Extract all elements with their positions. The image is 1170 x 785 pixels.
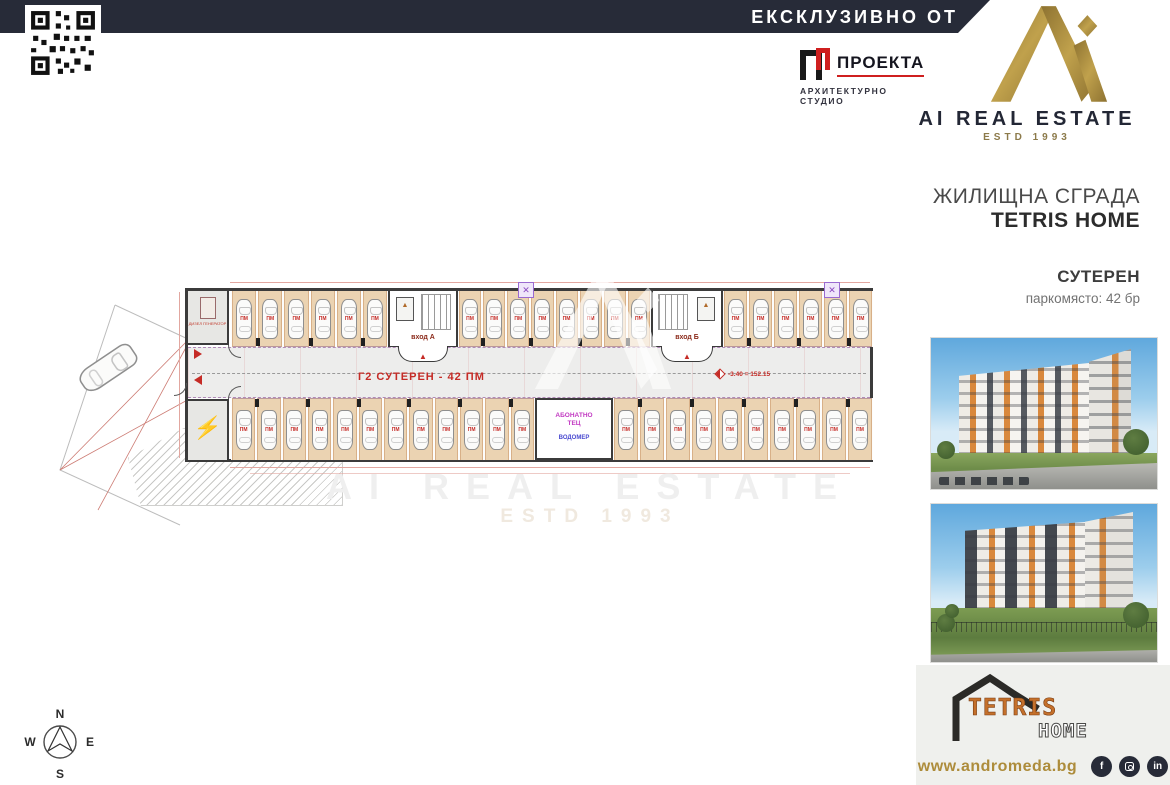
- parking-space-label: ПМ: [309, 427, 330, 433]
- parking-row-top: ПМПМПМПМПМПМПМПМ: [458, 291, 651, 347]
- parking-space-label: ПМ: [823, 427, 845, 433]
- dimension-line: [250, 473, 850, 474]
- parking-space-label: ПМ: [850, 316, 871, 322]
- parking-bay: ПМ: [435, 398, 458, 460]
- parking-bay: ПМ: [284, 291, 308, 347]
- drive-direction-arrow: [194, 349, 202, 359]
- parking-space-label: ПМ: [334, 427, 355, 433]
- parking-bay: ПМ: [556, 291, 578, 347]
- electrical-room: ⚡: [188, 399, 229, 460]
- parking-bay: ПМ: [409, 398, 432, 460]
- parking-bay: ПМ: [337, 291, 361, 347]
- architect-subtitle: АРХИТЕКТУРНО СТУДИО: [800, 86, 935, 106]
- floor-level: СУТЕРЕН: [933, 267, 1140, 287]
- dimension-line: [179, 292, 180, 458]
- stair-lobby: [398, 346, 448, 362]
- parking-bay: ПМ: [283, 398, 306, 460]
- elevation-value: -3.40 = 152.15: [728, 371, 770, 378]
- parking-bay: ПМ: [483, 291, 505, 347]
- parking-bay: ПМ: [232, 291, 256, 347]
- architect-name: ПРОЕКТА: [837, 53, 924, 77]
- parking-space-label: ПМ: [436, 427, 457, 433]
- parking-row-bottom: ПМПМПМПМПМПМПМПМПМПМПМПМ: [231, 398, 535, 460]
- parking-space-label: ПМ: [775, 316, 796, 322]
- website-link[interactable]: www.andromeda.bg: [918, 758, 1077, 776]
- parking-bay: ПМ: [718, 398, 742, 460]
- parking-bay: ПМ: [628, 291, 650, 347]
- parking-space-label: ПМ: [532, 316, 552, 322]
- parking-space-label: ПМ: [667, 427, 689, 433]
- parking-space-label: ПМ: [693, 427, 715, 433]
- parking-space-label: ПМ: [771, 427, 793, 433]
- dimension-line: [230, 282, 870, 283]
- parking-bay: ПМ: [257, 398, 280, 460]
- parking-bay: ПМ: [531, 291, 553, 347]
- water-meter-label: ВОДОМЕР: [537, 435, 611, 441]
- parking-bay: ПМ: [848, 398, 872, 460]
- generator-room: ДИЗЕЛ ГЕНЕРАТОР: [188, 291, 229, 345]
- instagram-icon[interactable]: [1119, 756, 1140, 777]
- footer-brand-panel: TETRIS HOME www.andromeda.bg f in: [916, 665, 1170, 785]
- stairs-icon: [658, 294, 688, 330]
- parking-space-label: ПМ: [233, 427, 254, 433]
- parking-space-label: ПМ: [508, 316, 528, 322]
- parking-space-label: ПМ: [641, 427, 663, 433]
- parking-bay: ПМ: [849, 291, 872, 347]
- parking-space-label: ПМ: [725, 316, 746, 322]
- parking-space-label: ПМ: [745, 427, 767, 433]
- parking-bay: ПМ: [640, 398, 664, 460]
- parking-space-label: ПМ: [284, 427, 305, 433]
- parking-space-label: ПМ: [338, 316, 360, 322]
- compass-e: E: [86, 735, 94, 749]
- building-render-1: [930, 337, 1158, 490]
- parking-bay: ПМ: [824, 291, 847, 347]
- heating-room-label: АБОНАТНО ТЕЦ: [537, 412, 611, 429]
- compass-s: S: [56, 767, 64, 781]
- parking-space-label: ПМ: [605, 316, 625, 322]
- parking-space-label: ПМ: [615, 427, 637, 433]
- flyer-page: ЕКСКЛУЗИВНО ОТ: [0, 0, 1170, 785]
- ventilation-shaft-icon: ✕: [518, 282, 534, 298]
- parking-bay: ПМ: [258, 291, 282, 347]
- parking-space-label: ПМ: [410, 427, 431, 433]
- parking-bay: ПМ: [311, 291, 335, 347]
- parking-space-label: ПМ: [258, 427, 279, 433]
- parking-bay: ПМ: [363, 291, 387, 347]
- door-arc-icon: [174, 383, 187, 396]
- electrical-icon: ⚡: [186, 415, 230, 441]
- compass-rose: N E S W: [22, 700, 98, 782]
- parking-row-top: ПМПМПМПМПМПМ: [231, 291, 388, 347]
- parking-bay: ПМ: [507, 291, 529, 347]
- project-headline: ЖИЛИЩНА СГРАДА TETRIS HOME СУТЕРЕН парко…: [933, 185, 1140, 306]
- parking-row-top: ПМПМПМПМПМПМ: [723, 291, 873, 347]
- floor-plan: ✕ ✕ ДИЗЕЛ ГЕНЕРАТОР ⚡ ПМПМПМПМПМПМ вход …: [185, 288, 873, 462]
- parking-bay: ПМ: [614, 398, 638, 460]
- generator-room-label: ДИЗЕЛ ГЕНЕРАТОР: [188, 322, 227, 327]
- parking-bay: ПМ: [333, 398, 356, 460]
- elevator-icon: [396, 297, 414, 321]
- ai-real-estate-logo-icon: [985, 2, 1113, 106]
- elevation-marker: -3.40 = 152.15: [716, 370, 770, 378]
- parking-space-label: ПМ: [233, 316, 255, 322]
- parking-space-label: ПМ: [581, 316, 601, 322]
- stair-lobby: [661, 346, 713, 362]
- facebook-icon[interactable]: f: [1091, 756, 1112, 777]
- parking-bay: ПМ: [724, 291, 747, 347]
- parking-bay: ПМ: [459, 291, 481, 347]
- building-render-2: [930, 503, 1158, 663]
- parking-bay: ПМ: [604, 291, 626, 347]
- parking-space-label: ПМ: [557, 316, 577, 322]
- qr-code[interactable]: [25, 5, 101, 81]
- parking-bay: ПМ: [384, 398, 407, 460]
- parking-space-label: ПМ: [461, 427, 482, 433]
- parking-row-bottom: ПМПМПМПМПМПМПМПМПМПМ: [613, 398, 873, 460]
- parking-count: паркомясто: 42 бр: [933, 291, 1140, 306]
- parking-bay: ПМ: [796, 398, 820, 460]
- exclusive-label: ЕКСКЛУЗИВНО ОТ: [751, 7, 958, 28]
- parking-space-label: ПМ: [800, 316, 821, 322]
- parking-bay: ПМ: [770, 398, 794, 460]
- parking-space-label: ПМ: [750, 316, 771, 322]
- parking-bay: ПМ: [308, 398, 331, 460]
- parking-bay: ПМ: [580, 291, 602, 347]
- parking-bay: ПМ: [749, 291, 772, 347]
- elevator-icon: [697, 297, 715, 321]
- tetris-home-logo: TETRIS HOME: [942, 673, 1142, 745]
- compass-n: N: [56, 707, 65, 721]
- entrance-a-label: вход А: [390, 334, 456, 341]
- parking-space-label: ПМ: [364, 316, 386, 322]
- parking-space-label: ПМ: [385, 427, 406, 433]
- parking-space-label: ПМ: [484, 316, 504, 322]
- elevation-diamond-icon: [714, 368, 725, 379]
- brand-estd: ESTD 1993: [912, 132, 1142, 143]
- parking-bay: ПМ: [232, 398, 255, 460]
- parking-bay: ПМ: [460, 398, 483, 460]
- compass-w: W: [24, 735, 36, 749]
- parking-bay: ПМ: [799, 291, 822, 347]
- parking-space-label: ПМ: [486, 427, 507, 433]
- parking-bay: ПМ: [666, 398, 690, 460]
- parking-bay: ПМ: [511, 398, 534, 460]
- parking-space-label: ПМ: [825, 316, 846, 322]
- stairs-icon: [421, 294, 451, 330]
- parking-space-label: ПМ: [512, 427, 533, 433]
- home-logo-text: HOME: [1038, 720, 1088, 742]
- entrance-b-label: вход Б: [653, 334, 721, 341]
- parking-space-label: ПМ: [797, 427, 819, 433]
- tetris-logo-text: TETRIS: [968, 695, 1057, 721]
- parking-space-label: ПМ: [719, 427, 741, 433]
- building-type: ЖИЛИЩНА СГРАДА: [933, 185, 1140, 209]
- parking-space-label: ПМ: [460, 316, 480, 322]
- parking-space-label: ПМ: [849, 427, 871, 433]
- architect-icon: [800, 48, 830, 82]
- parking-space-label: ПМ: [259, 316, 281, 322]
- utility-room: АБОНАТНО ТЕЦ ВОДОМЕР: [535, 398, 613, 460]
- plan-title: Г2 СУТЕРЕН - 42 ПМ: [358, 371, 485, 383]
- parking-space-label: ПМ: [629, 316, 649, 322]
- parking-space-label: ПМ: [285, 316, 307, 322]
- parking-bay: ПМ: [822, 398, 846, 460]
- stairwell-entrance-a: вход А: [388, 291, 458, 347]
- parking-bay: ПМ: [359, 398, 382, 460]
- stairwell-entrance-b: вход Б: [651, 291, 723, 347]
- qr-pattern: [29, 9, 97, 77]
- parking-bay: ПМ: [692, 398, 716, 460]
- brand-name: AI REAL ESTATE: [912, 108, 1142, 131]
- parking-space-label: ПМ: [312, 316, 334, 322]
- parking-bay: ПМ: [744, 398, 768, 460]
- parking-bay: ПМ: [774, 291, 797, 347]
- linkedin-icon[interactable]: in: [1147, 756, 1168, 777]
- parking-bay: ПМ: [485, 398, 508, 460]
- ventilation-shaft-icon: ✕: [824, 282, 840, 298]
- project-name: TETRIS HOME: [933, 209, 1140, 233]
- parking-space-label: ПМ: [360, 427, 381, 433]
- drive-direction-arrow: [194, 375, 202, 385]
- generator-equipment: [200, 297, 216, 319]
- architect-logo: ПРОЕКТА АРХИТЕКТУРНО СТУДИО: [800, 48, 935, 106]
- dimension-line: [230, 467, 870, 468]
